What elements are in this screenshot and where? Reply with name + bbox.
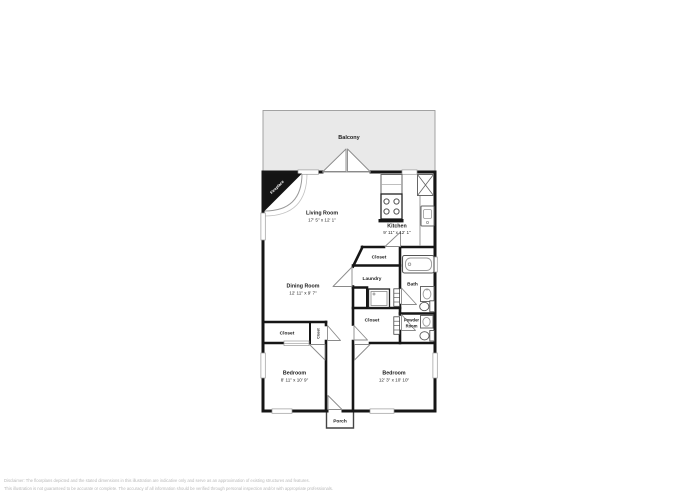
laundry-label: Laundry: [363, 276, 382, 282]
window-icon: [261, 353, 265, 378]
disclaimer: Disclaimer: The floorplans depicted and …: [4, 477, 333, 493]
closet-bedroom-label: Closet: [280, 331, 295, 337]
sliding-closet-door-icon: [284, 341, 309, 346]
kitchen-sink-icon: [421, 206, 434, 226]
kitchen-dims: 9' 11" x 12' 1": [383, 230, 411, 235]
window-icon: [272, 409, 292, 413]
window-icon: [261, 213, 265, 240]
disclaimer-line1: Disclaimer: The floorplans depicted and …: [4, 477, 333, 485]
floorplan-image: Fireplace: [0, 0, 700, 500]
bedroom-left-label: Bedroom: [283, 371, 307, 377]
bedroom-right-label: Bedroom: [382, 371, 406, 377]
closet-pantry-label: Closet: [372, 255, 387, 261]
refrigerator-icon: [418, 175, 434, 196]
bath-vanity-sink-icon: [421, 287, 435, 302]
window-icon: [370, 409, 394, 413]
living-room-dims: 17' 5" x 12' 1": [308, 218, 336, 223]
closet-small-label: Closet: [317, 327, 321, 338]
living-room-label: Living Room: [306, 211, 338, 217]
kitchen-label: Kitchen: [387, 224, 406, 230]
bifold-door-icon: [394, 317, 400, 335]
window-icon: [433, 353, 437, 378]
powder-room-label-line1: Powder: [404, 318, 419, 323]
disclaimer-line2: This illustration is not guaranteed to b…: [4, 485, 333, 493]
bath-label: Bath: [407, 282, 418, 288]
bedroom-right-dims: 12' 3" x 10' 10": [379, 378, 410, 383]
window-icon: [402, 170, 417, 174]
powder-vanity-sink-icon: [421, 316, 434, 329]
stove-icon: [379, 175, 404, 223]
floorplan-drawing: Fireplace: [0, 0, 700, 500]
bedroom-left-dims: 8' 11" x 10' 9": [281, 378, 309, 383]
porch-label: Porch: [333, 419, 347, 425]
dining-room-label: Dining Room: [287, 284, 320, 290]
bifold-door-icon: [394, 289, 400, 307]
washer-icon: [369, 289, 390, 308]
closet-hall-label: Closet: [365, 318, 380, 324]
dining-room-dims: 12' 11" x 9' 7": [289, 291, 317, 296]
bathtub-icon: [403, 256, 435, 274]
powder-toilet-icon: [420, 331, 434, 342]
powder-room-label-line2: Room: [406, 324, 418, 329]
balcony-label: Balcony: [338, 135, 360, 141]
